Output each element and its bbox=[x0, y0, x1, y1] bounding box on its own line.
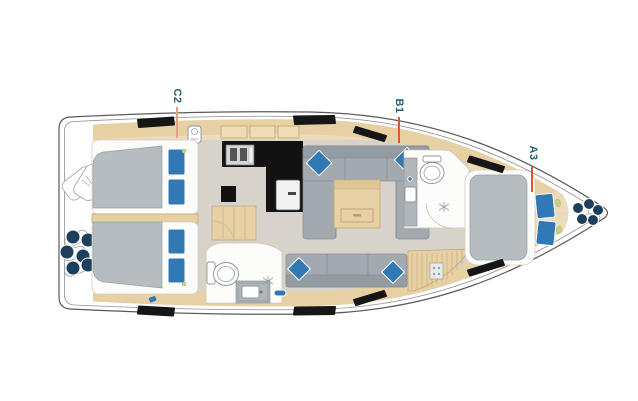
sink-icon bbox=[405, 187, 416, 202]
yacht-deck-plan: C2 B1 A3 bbox=[0, 0, 638, 401]
deck-hatch-icon bbox=[294, 116, 335, 124]
bow-fenders-icon bbox=[572, 199, 603, 226]
pillow bbox=[535, 193, 555, 219]
grate-icon bbox=[430, 263, 443, 279]
cabin-label-b1: B1 bbox=[392, 94, 406, 118]
pillow bbox=[168, 258, 185, 283]
table-icon bbox=[334, 180, 380, 228]
label-leader-a3 bbox=[531, 166, 533, 192]
aft-cabin-port bbox=[92, 140, 198, 223]
bed-mattress bbox=[93, 146, 162, 208]
reading-light-icon bbox=[182, 149, 186, 153]
pillow bbox=[168, 179, 185, 205]
aft-cabin-starboard bbox=[92, 222, 198, 294]
fridge-icon bbox=[276, 180, 300, 210]
cabin-label-c2: C2 bbox=[170, 84, 184, 108]
forward-head bbox=[404, 150, 469, 228]
bed-mattress bbox=[93, 222, 162, 288]
pillow bbox=[168, 149, 185, 175]
aft-head bbox=[206, 243, 286, 303]
deck-hatch-icon bbox=[138, 118, 174, 128]
toilet-icon bbox=[207, 262, 239, 286]
cabin-label-a3: A3 bbox=[526, 141, 540, 165]
starboard-bench bbox=[286, 254, 407, 287]
label-leader-c2 bbox=[176, 107, 178, 138]
pillow bbox=[536, 220, 556, 246]
bed-mattress bbox=[470, 175, 527, 260]
bath-mat bbox=[274, 290, 286, 296]
locker bbox=[221, 126, 247, 138]
locker bbox=[250, 126, 275, 138]
deck-hatch-icon bbox=[294, 307, 335, 315]
sink-icon bbox=[238, 283, 268, 301]
pillow bbox=[168, 229, 185, 254]
boat-plan-svg bbox=[0, 0, 638, 401]
locker bbox=[278, 126, 299, 138]
towel bbox=[408, 177, 412, 181]
deck-hatch-icon bbox=[138, 307, 174, 316]
companionway-steps-icon bbox=[212, 206, 256, 240]
mast-box bbox=[221, 186, 236, 202]
reading-light-icon bbox=[182, 282, 186, 286]
label-leader-b1 bbox=[398, 117, 400, 143]
stove-icon bbox=[226, 145, 254, 165]
